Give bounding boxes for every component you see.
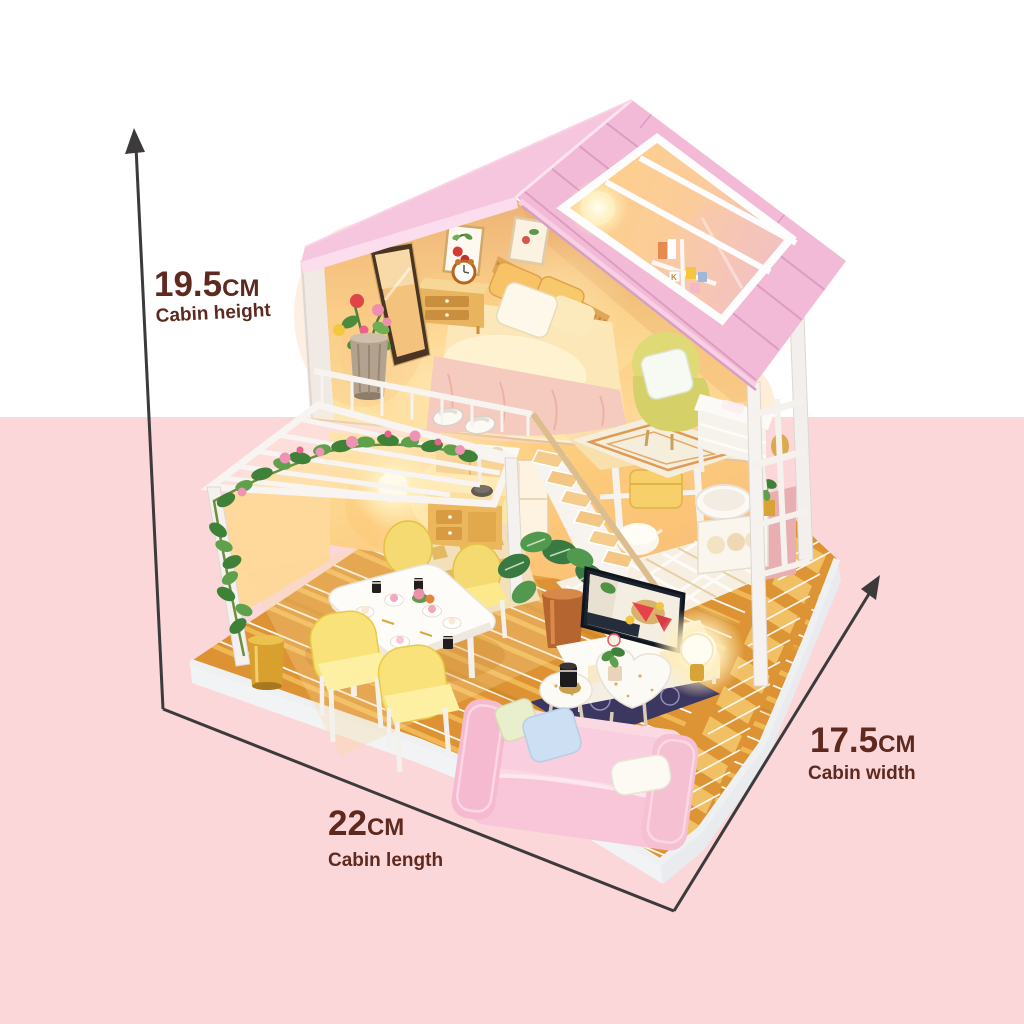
svg-text:Cabin length: Cabin length <box>328 850 443 871</box>
svg-text:Cabin width: Cabin width <box>808 763 916 784</box>
